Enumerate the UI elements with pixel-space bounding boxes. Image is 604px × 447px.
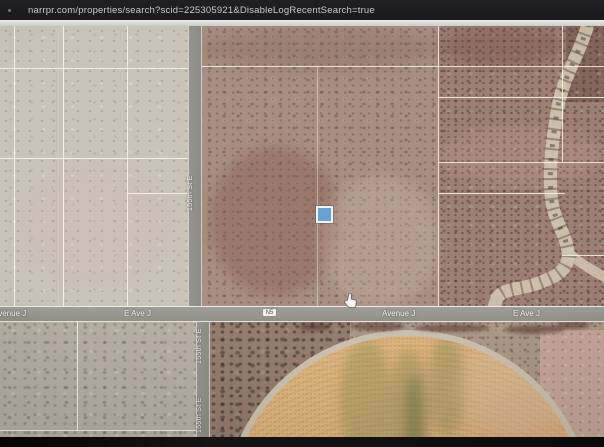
satellite-map[interactable]: Avenue J E Ave J N5 Avenue J E Ave J 155… bbox=[0, 26, 604, 437]
parcel-line bbox=[317, 66, 318, 306]
parcel-line bbox=[438, 193, 565, 194]
parcel-line bbox=[200, 66, 604, 67]
parcel-line bbox=[0, 158, 189, 159]
url-text[interactable]: narrpr.com/properties/search?scid=225305… bbox=[28, 5, 375, 16]
road-label-155th-st: 155th St E bbox=[196, 323, 208, 369]
desert-wash bbox=[0, 26, 604, 437]
parcel-line bbox=[438, 26, 439, 306]
parcel-line bbox=[0, 430, 196, 431]
parcel-line bbox=[128, 193, 189, 194]
hand-cursor-icon bbox=[343, 293, 358, 309]
parcel-line bbox=[562, 255, 604, 256]
road-label-e-ave-j: E Ave J bbox=[513, 308, 540, 319]
road-label-e-ave-j: E Ave J bbox=[124, 308, 151, 319]
parcel-line bbox=[0, 68, 189, 69]
route-shield: N5 bbox=[262, 308, 277, 317]
road-label-avenue-j: Avenue J bbox=[382, 308, 415, 319]
road-label-155th-st: 155th St E bbox=[187, 164, 199, 222]
parcel-line bbox=[438, 162, 604, 163]
screen-bezel bbox=[0, 437, 604, 447]
parcel-line bbox=[438, 97, 604, 98]
road-label-155th-st: 155th St E bbox=[196, 392, 208, 437]
property-marker[interactable] bbox=[316, 206, 333, 223]
favicon-dot-icon bbox=[8, 9, 11, 12]
road-label-avenue-j: Avenue J bbox=[0, 308, 26, 319]
parcel-line bbox=[562, 26, 563, 162]
parcel-line bbox=[77, 321, 78, 431]
browser-url-bar[interactable]: narrpr.com/properties/search?scid=225305… bbox=[0, 0, 604, 20]
screen-photo: narrpr.com/properties/search?scid=225305… bbox=[0, 0, 604, 447]
